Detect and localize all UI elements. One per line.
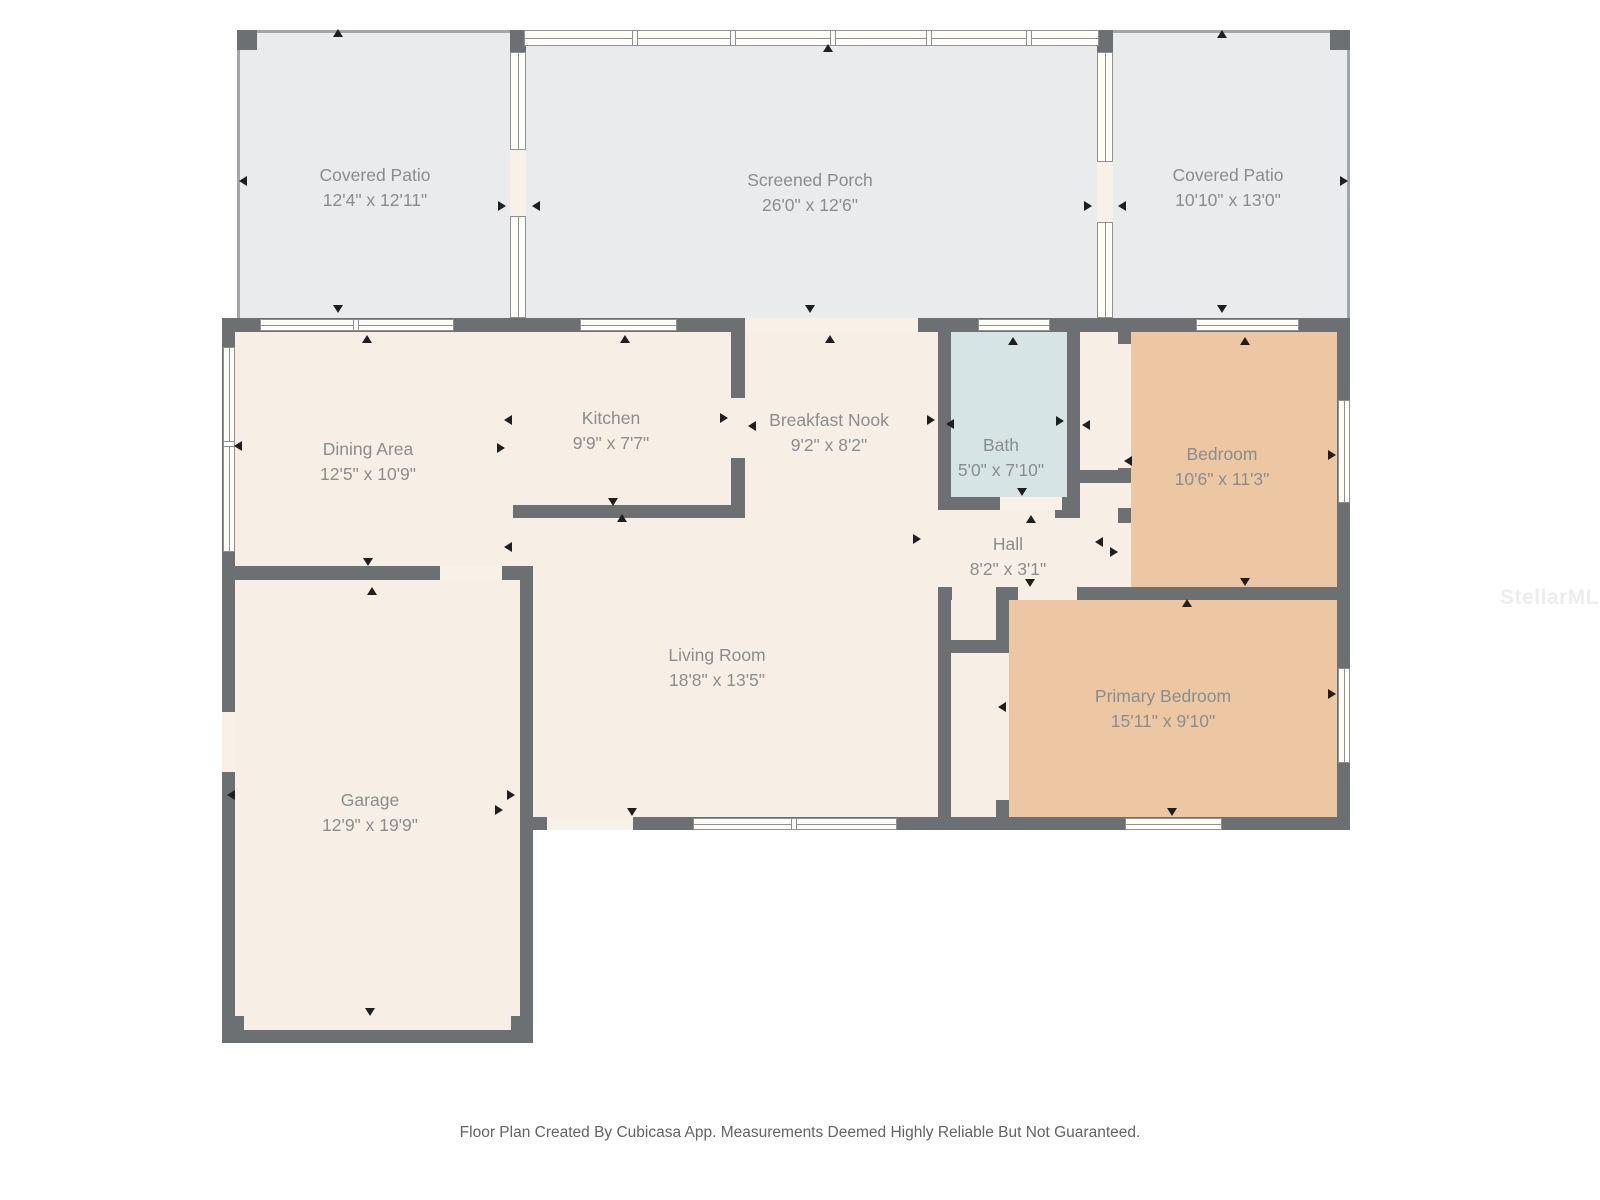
direction-arrow-up [823,44,833,52]
window-primary-right [1338,668,1350,763]
direction-arrow-down [363,558,373,566]
direction-arrow-down [1217,305,1227,313]
direction-arrow-up [825,335,835,343]
direction-arrow-down [627,808,637,816]
stellar-mls-watermark: StellarMLS [1500,586,1600,610]
window-pane-line [1105,53,1106,161]
direction-arrow-down [333,305,343,313]
room-label-screened-porch: Screened Porch26'0" x 12'6" [747,168,873,218]
room-dimensions: 10'10" x 13'0" [1173,188,1284,213]
window-pane-line [581,325,676,326]
direction-arrow-left [1095,537,1103,547]
room-dimensions: 10'6" x 11'3" [1175,467,1270,492]
window-mullion [1026,31,1032,45]
direction-arrow-right [1328,689,1336,699]
window-pane-line [1126,824,1221,825]
wall-bath-right [1067,332,1080,515]
direction-arrow-up [1217,30,1227,38]
window-pane-line [1105,223,1106,317]
window-mullion [926,31,932,45]
room-name: Garage [322,788,418,813]
direction-arrow-left [998,702,1006,712]
patio-right-side-edge [1347,30,1350,318]
direction-arrow-down [608,498,618,506]
direction-arrow-up [1026,515,1036,523]
room-dimensions: 5'0" x 7'10" [958,458,1044,483]
window-dining-top [260,319,454,331]
room-label-garage: Garage12'9" x 19'9" [322,788,418,838]
room-name: Screened Porch [747,168,873,193]
window-mullion [353,320,359,330]
window-divider-right-a [1097,52,1113,162]
room-dimensions: 9'9" x 7'7" [573,431,650,456]
room-label-dining-area: Dining Area12'5" x 10'9" [320,437,416,487]
window-kitchen-top [580,319,677,331]
room-label-covered-patio: Covered Patio12'4" x 12'11" [320,163,431,213]
porch-screen-band [524,30,1099,46]
direction-arrow-right [1340,176,1348,186]
window-bedroom-top [1196,319,1299,331]
floor-plan: Covered Patio12'4" x 12'11"Screened Porc… [0,0,1600,1200]
corner-block-patio-right [1330,30,1350,50]
direction-arrow-up [1008,337,1018,345]
direction-arrow-left [227,790,235,800]
opening-patio-divider-r [1097,162,1113,222]
wall-bedroom-left-mid [1118,468,1131,483]
direction-arrow-right [1328,450,1336,460]
window-pane-line [518,217,519,317]
corner-block-divider-right [1097,30,1113,52]
direction-arrow-right [497,443,505,453]
room-name: Kitchen [573,406,650,431]
wall-garage-right [520,580,533,1043]
corner-block-garage-left [222,1016,244,1043]
direction-arrow-right [927,415,935,425]
direction-arrow-down [1240,578,1250,586]
direction-arrow-left [1118,201,1126,211]
room-dimensions: 9'2" x 8'2" [769,433,889,458]
window-mullion [632,31,638,45]
wall-bedroom-left-top [1118,332,1131,344]
direction-arrow-down [805,305,815,313]
window-primary-bottom [1125,818,1222,830]
wall-primary-left-stub [996,800,1009,817]
opening-living-door [547,817,633,830]
direction-arrow-up [1240,337,1250,345]
room-label-covered-patio: Covered Patio10'10" x 13'0" [1173,163,1284,213]
window-mullion [791,819,797,829]
room-name: Bath [958,433,1044,458]
room-dimensions: 18'8" x 13'5" [668,668,765,693]
wall-bedroom-bottom [1077,587,1350,600]
room-dimensions: 12'5" x 10'9" [320,462,416,487]
direction-arrow-right [498,201,506,211]
wall-primary-left-upper [996,587,1009,653]
room-dimensions: 12'4" x 12'11" [320,188,431,213]
direction-arrow-down [1167,808,1177,816]
room-label-hall: Hall8'2" x 3'1" [970,532,1047,582]
room-label-bedroom: Bedroom10'6" x 11'3" [1175,442,1270,492]
room-name: Primary Bedroom [1095,684,1231,709]
wall-bedroom-left-block [1118,508,1131,523]
window-pane-line [525,38,1098,39]
room-label-bath: Bath5'0" x 7'10" [958,433,1044,483]
patio-left-top-edge [237,30,512,33]
room-label-kitchen: Kitchen9'9" x 7'7" [573,406,650,456]
wall-garage-bottom [222,1030,533,1043]
floor-plan-page: Covered Patio12'4" x 12'11"Screened Porc… [0,0,1600,1200]
wall-closet-left [938,587,951,830]
direction-arrow-down [365,1008,375,1016]
room-dimensions: 12'9" x 19'9" [322,813,418,838]
corner-block-garage-right [511,1016,533,1043]
direction-arrow-right [1110,547,1118,557]
opening-porch-to-nook [745,318,918,332]
window-mullion [730,31,736,45]
room-label-primary-bedroom: Primary Bedroom15'11" x 9'10" [1095,684,1231,734]
direction-arrow-right [1056,416,1064,426]
room-name: Living Room [668,643,765,668]
window-pane-line [518,53,519,149]
direction-arrow-left [504,542,512,552]
room-dimensions: 15'11" x 9'10" [1095,709,1231,734]
direction-arrow-left [1124,456,1132,466]
window-pane-line [979,325,1049,326]
direction-arrow-right [495,805,503,815]
opening-garage-side [222,712,235,772]
direction-arrow-up [617,514,627,522]
direction-arrow-right [913,534,921,544]
direction-arrow-right [1084,201,1092,211]
room-name: Dining Area [320,437,416,462]
direction-arrow-left [532,201,540,211]
wall-kitchen-right-upper [731,332,745,398]
window-mullion [224,441,234,447]
window-bedroom-right [1338,400,1350,503]
room-name: Bedroom [1175,442,1270,467]
window-pane-line [1197,325,1298,326]
wall-kitchen-right-lower [731,458,745,518]
corner-block-patio-left [237,30,257,50]
direction-arrow-left [234,441,242,451]
window-bath-top [978,319,1050,331]
direction-arrow-left [946,419,954,429]
patio-left-side-edge [237,30,240,318]
direction-arrow-left [504,415,512,425]
opening-bath-door [1000,497,1062,510]
direction-arrow-left [748,421,756,431]
direction-arrow-right [507,790,515,800]
room-label-living-room: Living Room18'8" x 13'5" [668,643,765,693]
window-living-bottom [693,818,897,830]
direction-arrow-up [367,587,377,595]
room-name: Breakfast Nook [769,408,889,433]
room-name: Covered Patio [320,163,431,188]
direction-arrow-up [1182,599,1192,607]
direction-arrow-up [333,29,343,37]
room-dimensions: 8'2" x 3'1" [970,557,1047,582]
window-mullion [830,31,836,45]
window-pane-line [229,348,230,551]
window-pane-line [1344,669,1345,762]
room-name: Covered Patio [1173,163,1284,188]
direction-arrow-up [620,335,630,343]
opening-patio-divider-l [510,150,526,216]
room-label-breakfast-nook: Breakfast Nook9'2" x 8'2" [769,408,889,458]
wall-garage-left [222,580,235,1043]
direction-arrow-up [362,335,372,343]
direction-arrow-down [1017,488,1027,496]
patio-right-top-edge [1111,30,1350,33]
opening-dining-garage [440,566,502,580]
wall-kitchen-bottom [513,505,745,518]
window-divider-left-b [510,216,526,318]
window-divider-left-a [510,52,526,150]
room-name: Hall [970,532,1047,557]
window-pane-line [1344,401,1345,502]
direction-arrow-left [1082,420,1090,430]
direction-arrow-left [239,176,247,186]
footer-disclaimer: Floor Plan Created By Cubicasa App. Meas… [0,1124,1600,1142]
direction-arrow-right [720,413,728,423]
room-dimensions: 26'0" x 12'6" [747,193,873,218]
window-divider-right-b [1097,222,1113,318]
